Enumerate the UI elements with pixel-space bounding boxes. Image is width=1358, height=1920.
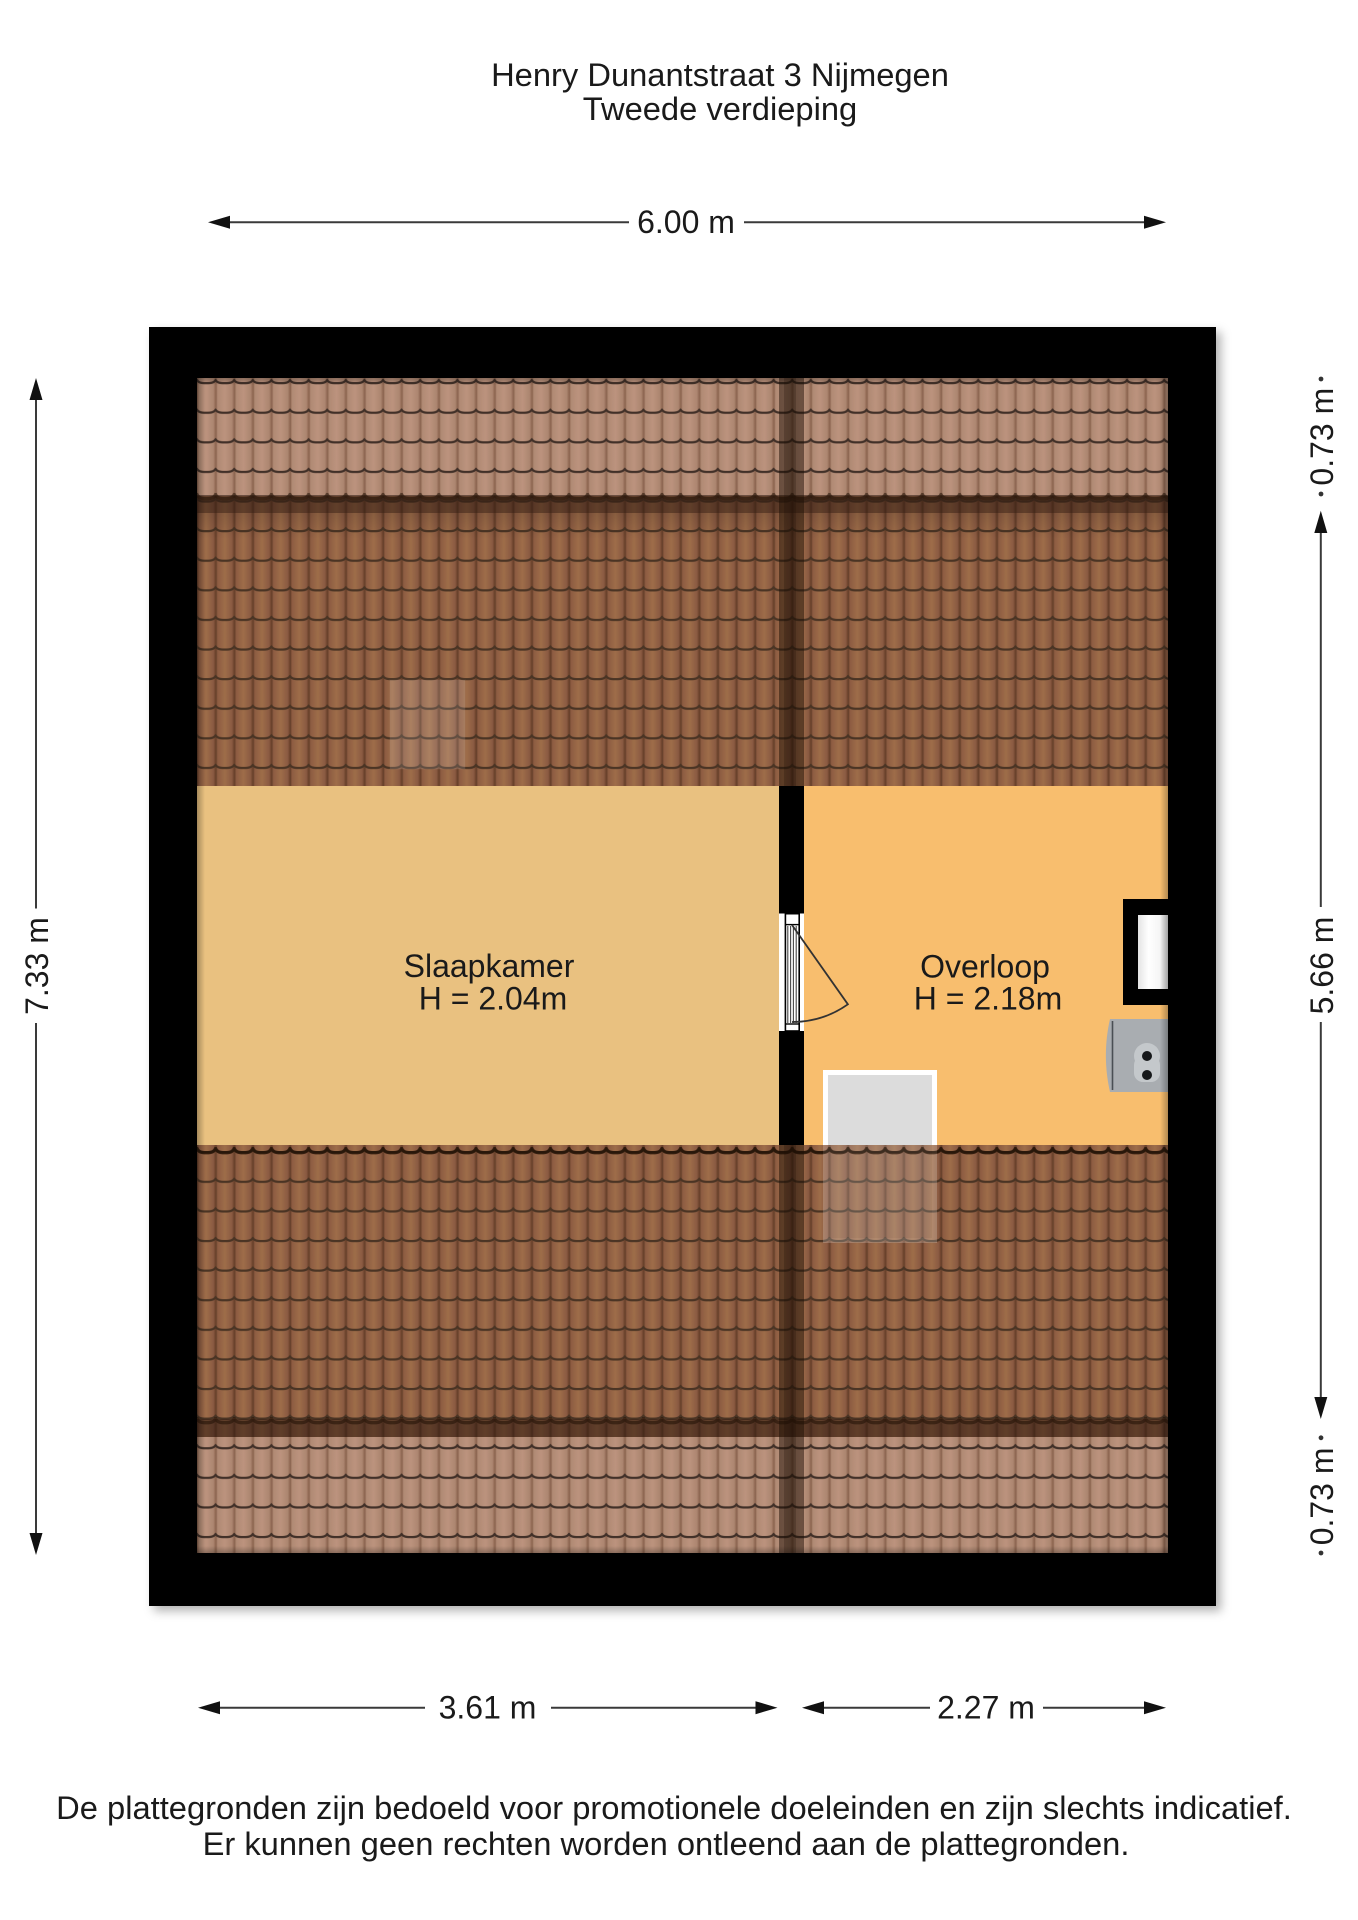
svg-text:2.27 m: 2.27 m — [937, 1690, 1035, 1726]
svg-text:5.66 m: 5.66 m — [1304, 917, 1340, 1015]
svg-text:Tweede verdieping: Tweede verdieping — [583, 90, 857, 127]
svg-text:Overloop: Overloop — [920, 949, 1050, 985]
svg-text:6.00 m: 6.00 m — [637, 204, 735, 240]
svg-text:Henry Dunantstraat 3 Nijmegen: Henry Dunantstraat 3 Nijmegen — [491, 56, 949, 93]
svg-text:H = 2.04m: H = 2.04m — [419, 981, 568, 1017]
svg-text:Slaapkamer: Slaapkamer — [404, 948, 575, 984]
svg-text:H = 2.18m: H = 2.18m — [914, 981, 1063, 1017]
svg-text:7.33 m: 7.33 m — [19, 917, 55, 1015]
svg-text:0.73 m: 0.73 m — [1304, 1447, 1340, 1545]
svg-text:0.73 m: 0.73 m — [1304, 388, 1340, 486]
svg-text:Er kunnen geen rechten worden: Er kunnen geen rechten worden ontleend a… — [203, 1825, 1130, 1862]
svg-text:3.61 m: 3.61 m — [439, 1690, 537, 1726]
svg-text:De plattegronden zijn bedoeld: De plattegronden zijn bedoeld voor promo… — [56, 1789, 1292, 1826]
